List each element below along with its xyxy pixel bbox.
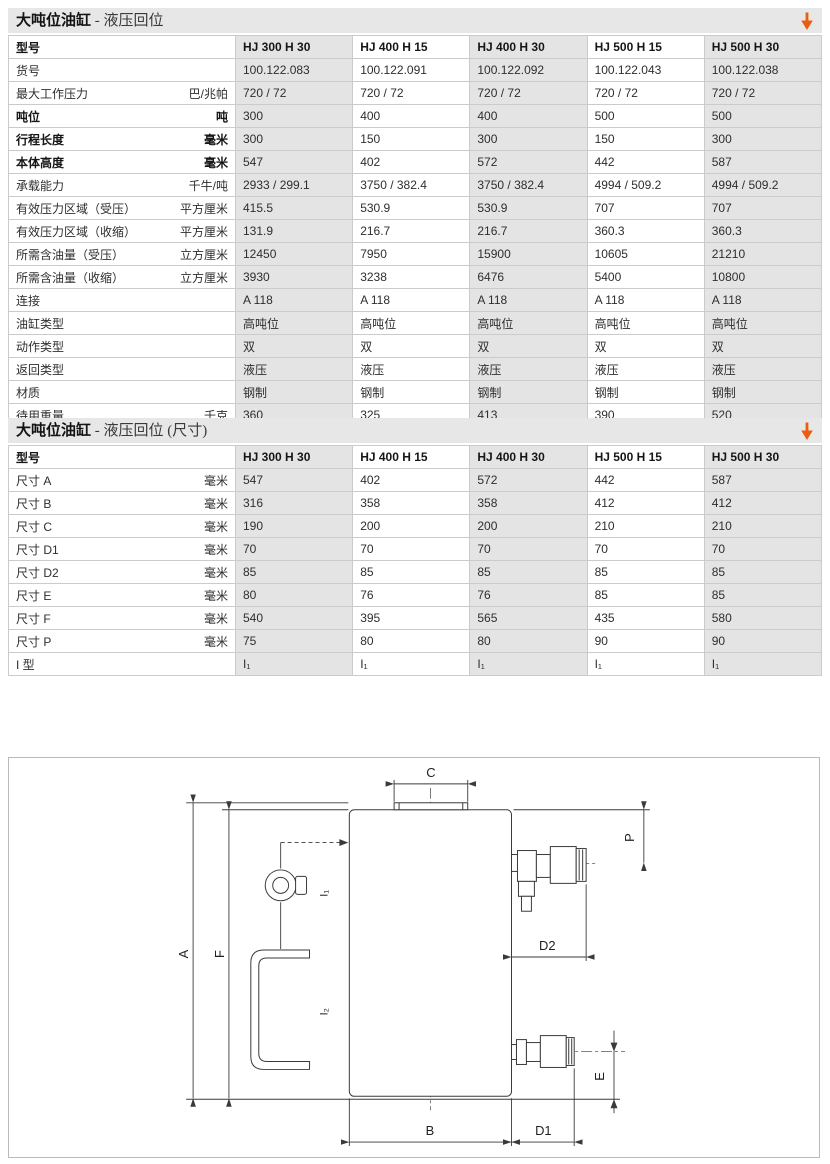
value-cell: 100.122.083: [236, 59, 353, 82]
row-label-wrap: 动作类型: [16, 338, 228, 355]
value-cell: A 118: [353, 289, 470, 312]
value-cell: 720 / 72: [704, 82, 821, 105]
value-cell: 76: [470, 584, 587, 607]
value-cell: 70: [470, 538, 587, 561]
value-cell: 300: [236, 105, 353, 128]
row-label-wrap: 有效压力区域（受压）平方厘米: [16, 200, 228, 217]
value-cell: 500: [587, 105, 704, 128]
value-cell: 300: [470, 128, 587, 151]
row-label-cell: 行程长度毫米: [9, 128, 236, 151]
value-cell: 400: [470, 105, 587, 128]
row-label-cell: 材质: [9, 381, 236, 404]
row-label: 油缸类型: [16, 315, 64, 332]
value-cell: 100.122.091: [353, 59, 470, 82]
table-row: 尺寸 P毫米7580809090: [9, 630, 822, 653]
table-row: 有效压力区域（收缩）平方厘米131.9216.7216.7360.3360.3: [9, 220, 822, 243]
value-cell: 高吨位: [470, 312, 587, 335]
value-cell: A 118: [470, 289, 587, 312]
table-row: 本体高度毫米547402572442587: [9, 151, 822, 174]
row-label-cell: I 型: [9, 653, 236, 676]
value-cell: 76: [353, 584, 470, 607]
row-label-wrap: 尺寸 D1毫米: [16, 541, 228, 558]
value-cell: 720 / 72: [587, 82, 704, 105]
row-label-wrap: 本体高度毫米: [16, 154, 228, 171]
value-cell: 540: [236, 607, 353, 630]
arrow-down-icon[interactable]: [799, 11, 815, 31]
value-cell: 300: [236, 128, 353, 151]
value-cell: 402: [353, 151, 470, 174]
value-cell: 10605: [587, 243, 704, 266]
section-title: 大吨位油缸: [16, 12, 91, 29]
table-row: 材质钢制钢制钢制钢制钢制: [9, 381, 822, 404]
spec-table-titlebar: 大吨位油缸 - 液压回位: [8, 8, 822, 33]
row-label: 尺寸 E: [16, 587, 51, 604]
value-cell: 4994 / 509.2: [587, 174, 704, 197]
row-unit: 毫米: [198, 610, 228, 627]
row-label-cell: 吨位吨: [9, 105, 236, 128]
value-cell: A 118: [587, 289, 704, 312]
row-label: 尺寸 D1: [16, 541, 59, 558]
table-row: 返回类型液压液压液压液压液压: [9, 358, 822, 381]
row-label-cell: 本体高度毫米: [9, 151, 236, 174]
value-cell: 70: [704, 538, 821, 561]
dimensions-table: 型号HJ 300 H 30HJ 400 H 15HJ 400 H 30HJ 50…: [8, 445, 822, 676]
section-subtitle: - 液压回位 (尺寸): [91, 423, 207, 439]
value-cell: 216.7: [470, 220, 587, 243]
row-unit: 毫米: [198, 495, 228, 512]
table-row: 所需含油量（收缩）立方厘米393032386476540010800: [9, 266, 822, 289]
value-cell: 75: [236, 630, 353, 653]
value-cell: 720 / 72: [236, 82, 353, 105]
row-unit: 吨: [210, 108, 228, 125]
table-row: 吨位吨300400400500500: [9, 105, 822, 128]
model-header-label: 型号: [9, 36, 236, 59]
row-unit: 毫米: [198, 472, 228, 489]
row-unit: 毫米: [198, 587, 228, 604]
bottom-coupler: [512, 1036, 575, 1068]
row-unit: 毫米: [198, 633, 228, 650]
row-label: 动作类型: [16, 338, 64, 355]
label-f: F: [212, 950, 227, 958]
table-row: 货号100.122.083100.122.091100.122.092100.1…: [9, 59, 822, 82]
row-unit: 毫米: [198, 564, 228, 581]
value-cell: 200: [353, 515, 470, 538]
value-cell: 4994 / 509.2: [704, 174, 821, 197]
value-cell: 液压: [353, 358, 470, 381]
table-row: 有效压力区域（受压）平方厘米415.5530.9530.9707707: [9, 197, 822, 220]
value-cell: 572: [470, 151, 587, 174]
lifting-eye: I₁: [265, 839, 348, 901]
value-cell: 587: [704, 469, 821, 492]
row-label-wrap: 承载能力千牛/吨: [16, 177, 228, 194]
section-title: 大吨位油缸: [16, 422, 91, 439]
dimensions-table-section: 大吨位油缸 - 液压回位 (尺寸) 型号HJ 300 H 30HJ 400 H …: [8, 418, 822, 676]
column-header: HJ 300 H 30: [236, 36, 353, 59]
value-cell: 10800: [704, 266, 821, 289]
row-label-cell: 承载能力千牛/吨: [9, 174, 236, 197]
column-header: HJ 500 H 15: [587, 446, 704, 469]
column-header: HJ 400 H 30: [470, 36, 587, 59]
dimension-c: C: [394, 765, 468, 802]
row-label-wrap: 材质: [16, 384, 228, 401]
table-row: 尺寸 A毫米547402572442587: [9, 469, 822, 492]
value-cell: 高吨位: [353, 312, 470, 335]
row-label: 尺寸 F: [16, 610, 51, 627]
column-header: HJ 400 H 15: [353, 36, 470, 59]
spec-table: 型号HJ 300 H 30HJ 400 H 15HJ 400 H 30HJ 50…: [8, 35, 822, 427]
value-cell: 442: [587, 151, 704, 174]
carry-handle: I₂: [251, 950, 331, 1069]
value-cell: 358: [353, 492, 470, 515]
row-label-wrap: 尺寸 A毫米: [16, 472, 228, 489]
value-cell: 131.9: [236, 220, 353, 243]
row-label-wrap: 尺寸 C毫米: [16, 518, 228, 535]
value-cell: 216.7: [353, 220, 470, 243]
column-header: HJ 300 H 30: [236, 446, 353, 469]
label-d1: D1: [535, 1123, 552, 1138]
value-cell: 412: [704, 492, 821, 515]
value-cell: 358: [470, 492, 587, 515]
table-row: 所需含油量（受压）立方厘米124507950159001060521210: [9, 243, 822, 266]
technical-drawing-frame: C A F: [8, 757, 820, 1158]
cylinder-technical-drawing: C A F: [9, 758, 819, 1157]
label-e: E: [592, 1072, 607, 1081]
row-label-wrap: 尺寸 D2毫米: [16, 564, 228, 581]
row-label-wrap: 油缸类型: [16, 315, 228, 332]
table-row: 连接A 118A 118A 118A 118A 118: [9, 289, 822, 312]
row-label-cell: 尺寸 E毫米: [9, 584, 236, 607]
value-cell: 720 / 72: [470, 82, 587, 105]
table-row: 承载能力千牛/吨2933 / 299.13750 / 382.43750 / 3…: [9, 174, 822, 197]
value-cell: 210: [587, 515, 704, 538]
value-cell: 70: [353, 538, 470, 561]
value-cell: 双: [236, 335, 353, 358]
value-cell: 85: [353, 561, 470, 584]
value-cell: 6476: [470, 266, 587, 289]
value-cell: 2933 / 299.1: [236, 174, 353, 197]
value-cell: I₁: [704, 653, 821, 676]
table-header-row: 型号HJ 300 H 30HJ 400 H 15HJ 400 H 30HJ 50…: [9, 36, 822, 59]
dimension-d1: D1: [512, 1068, 575, 1146]
value-cell: 液压: [470, 358, 587, 381]
value-cell: 500: [704, 105, 821, 128]
value-cell: 190: [236, 515, 353, 538]
value-cell: 双: [470, 335, 587, 358]
row-label: 尺寸 C: [16, 518, 52, 535]
label-c: C: [426, 765, 435, 780]
row-unit: 平方厘米: [174, 223, 228, 240]
row-label-cell: 所需含油量（收缩）立方厘米: [9, 266, 236, 289]
label-p: P: [622, 833, 637, 842]
value-cell: 210: [704, 515, 821, 538]
section-subtitle: - 液压回位: [91, 13, 164, 29]
value-cell: 572: [470, 469, 587, 492]
value-cell: 707: [704, 197, 821, 220]
value-cell: 液压: [587, 358, 704, 381]
value-cell: 7950: [353, 243, 470, 266]
value-cell: 液压: [704, 358, 821, 381]
value-cell: I₁: [236, 653, 353, 676]
table-row: 行程长度毫米300150300150300: [9, 128, 822, 151]
row-label-cell: 油缸类型: [9, 312, 236, 335]
row-label-cell: 尺寸 A毫米: [9, 469, 236, 492]
value-cell: 高吨位: [704, 312, 821, 335]
row-label-wrap: I 型: [16, 656, 228, 673]
value-cell: I₁: [587, 653, 704, 676]
value-cell: 85: [587, 584, 704, 607]
column-header: HJ 500 H 15: [587, 36, 704, 59]
row-label-cell: 最大工作压力巴/兆帕: [9, 82, 236, 105]
row-unit: 巴/兆帕: [183, 85, 228, 102]
row-label-wrap: 所需含油量（受压）立方厘米: [16, 246, 228, 263]
row-label-cell: 尺寸 P毫米: [9, 630, 236, 653]
dimensions-table-titlebar: 大吨位油缸 - 液压回位 (尺寸): [8, 418, 822, 443]
row-label-cell: 连接: [9, 289, 236, 312]
value-cell: 720 / 72: [353, 82, 470, 105]
row-unit: 立方厘米: [174, 246, 228, 263]
top-coupler: [512, 847, 587, 912]
table-row: 尺寸 D2毫米8585858585: [9, 561, 822, 584]
table-row: 尺寸 D1毫米7070707070: [9, 538, 822, 561]
value-cell: 415.5: [236, 197, 353, 220]
row-label-cell: 尺寸 F毫米: [9, 607, 236, 630]
column-header: HJ 500 H 30: [704, 446, 821, 469]
row-label: 承载能力: [16, 177, 64, 194]
row-label: 本体高度: [16, 154, 64, 171]
model-header-label: 型号: [9, 446, 236, 469]
label-i1: I₁: [318, 890, 330, 897]
row-label-cell: 尺寸 D2毫米: [9, 561, 236, 584]
row-label: 吨位: [16, 108, 40, 125]
row-label-wrap: 连接: [16, 292, 228, 309]
value-cell: 3750 / 382.4: [353, 174, 470, 197]
value-cell: 300: [704, 128, 821, 151]
value-cell: 85: [704, 584, 821, 607]
value-cell: A 118: [236, 289, 353, 312]
value-cell: A 118: [704, 289, 821, 312]
value-cell: 双: [353, 335, 470, 358]
value-cell: 80: [470, 630, 587, 653]
row-label-cell: 有效压力区域（收缩）平方厘米: [9, 220, 236, 243]
value-cell: 钢制: [470, 381, 587, 404]
value-cell: 580: [704, 607, 821, 630]
table-row: 尺寸 C毫米190200200210210: [9, 515, 822, 538]
value-cell: 360.3: [587, 220, 704, 243]
row-label: 尺寸 D2: [16, 564, 59, 581]
row-unit: 立方厘米: [174, 269, 228, 286]
row-label: 连接: [16, 292, 40, 309]
spec-table-section: 大吨位油缸 - 液压回位 型号HJ 300 H 30HJ 400 H 15HJ …: [8, 8, 822, 427]
row-label-cell: 有效压力区域（受压）平方厘米: [9, 197, 236, 220]
row-label: 所需含油量（收缩）: [16, 269, 124, 286]
value-cell: 402: [353, 469, 470, 492]
row-label-cell: 尺寸 B毫米: [9, 492, 236, 515]
label-d2: D2: [539, 938, 556, 953]
row-label-wrap: 尺寸 F毫米: [16, 610, 228, 627]
value-cell: 412: [587, 492, 704, 515]
table-header-row: 型号HJ 300 H 30HJ 400 H 15HJ 400 H 30HJ 50…: [9, 446, 822, 469]
label-b: B: [426, 1123, 435, 1138]
row-unit: 平方厘米: [174, 200, 228, 217]
row-label-wrap: 有效压力区域（收缩）平方厘米: [16, 223, 228, 240]
row-label-cell: 尺寸 C毫米: [9, 515, 236, 538]
value-cell: 液压: [236, 358, 353, 381]
value-cell: 5400: [587, 266, 704, 289]
table-row: 最大工作压力巴/兆帕720 / 72720 / 72720 / 72720 / …: [9, 82, 822, 105]
row-label-wrap: 最大工作压力巴/兆帕: [16, 85, 228, 102]
row-label-wrap: 行程长度毫米: [16, 131, 228, 148]
value-cell: 85: [587, 561, 704, 584]
label-i2: I₂: [318, 1008, 330, 1015]
value-cell: 双: [587, 335, 704, 358]
row-label-wrap: 吨位吨: [16, 108, 228, 125]
value-cell: 400: [353, 105, 470, 128]
value-cell: 100.122.092: [470, 59, 587, 82]
value-cell: 3238: [353, 266, 470, 289]
row-label: 尺寸 B: [16, 495, 51, 512]
row-label: I 型: [16, 656, 35, 673]
column-header: HJ 400 H 30: [470, 446, 587, 469]
value-cell: 钢制: [236, 381, 353, 404]
value-cell: 442: [587, 469, 704, 492]
value-cell: 530.9: [470, 197, 587, 220]
value-cell: 85: [236, 561, 353, 584]
value-cell: 80: [236, 584, 353, 607]
value-cell: 395: [353, 607, 470, 630]
value-cell: 100.122.043: [587, 59, 704, 82]
row-label: 材质: [16, 384, 40, 401]
saddle-cap: [394, 803, 468, 810]
value-cell: 21210: [704, 243, 821, 266]
value-cell: 3750 / 382.4: [470, 174, 587, 197]
row-label-wrap: 所需含油量（收缩）立方厘米: [16, 269, 228, 286]
value-cell: 435: [587, 607, 704, 630]
value-cell: 547: [236, 151, 353, 174]
row-unit: 千牛/吨: [183, 177, 228, 194]
value-cell: 钢制: [587, 381, 704, 404]
table-row: 油缸类型高吨位高吨位高吨位高吨位高吨位: [9, 312, 822, 335]
column-header: HJ 400 H 15: [353, 446, 470, 469]
row-label-cell: 尺寸 D1毫米: [9, 538, 236, 561]
row-label-wrap: 货号: [16, 62, 228, 79]
value-cell: 钢制: [353, 381, 470, 404]
value-cell: 316: [236, 492, 353, 515]
value-cell: 70: [587, 538, 704, 561]
value-cell: 85: [704, 561, 821, 584]
table-row: I 型I₁I₁I₁I₁I₁: [9, 653, 822, 676]
value-cell: 90: [587, 630, 704, 653]
value-cell: 12450: [236, 243, 353, 266]
table-row: 尺寸 F毫米540395565435580: [9, 607, 822, 630]
value-cell: 150: [353, 128, 470, 151]
row-label: 最大工作压力: [16, 85, 88, 102]
value-cell: 530.9: [353, 197, 470, 220]
value-cell: 100.122.038: [704, 59, 821, 82]
row-label-wrap: 尺寸 P毫米: [16, 633, 228, 650]
arrow-down-icon[interactable]: [799, 421, 815, 441]
value-cell: 200: [470, 515, 587, 538]
row-unit: 毫米: [198, 518, 228, 535]
value-cell: 钢制: [704, 381, 821, 404]
datasheet-page: 大吨位油缸 - 液压回位 型号HJ 300 H 30HJ 400 H 15HJ …: [0, 0, 830, 1164]
dimension-e: E: [592, 1031, 617, 1114]
value-cell: 高吨位: [587, 312, 704, 335]
dimension-b: B: [349, 1098, 511, 1146]
row-label: 返回类型: [16, 361, 64, 378]
cylinder-body: [349, 810, 511, 1097]
row-label-wrap: 尺寸 B毫米: [16, 495, 228, 512]
row-label: 货号: [16, 62, 40, 79]
row-label-cell: 货号: [9, 59, 236, 82]
row-label: 尺寸 P: [16, 633, 51, 650]
row-label-wrap: 尺寸 E毫米: [16, 587, 228, 604]
value-cell: 高吨位: [236, 312, 353, 335]
label-a: A: [176, 949, 191, 958]
row-label-cell: 动作类型: [9, 335, 236, 358]
value-cell: I₁: [470, 653, 587, 676]
value-cell: 80: [353, 630, 470, 653]
value-cell: 360.3: [704, 220, 821, 243]
value-cell: 双: [704, 335, 821, 358]
value-cell: 587: [704, 151, 821, 174]
value-cell: 70: [236, 538, 353, 561]
table-row: 动作类型双双双双双: [9, 335, 822, 358]
row-unit: 毫米: [198, 154, 228, 171]
row-label: 有效压力区域（受压）: [16, 200, 136, 217]
row-label: 有效压力区域（收缩）: [16, 223, 136, 240]
row-unit: 毫米: [198, 131, 228, 148]
row-label-cell: 所需含油量（受压）立方厘米: [9, 243, 236, 266]
value-cell: 547: [236, 469, 353, 492]
row-label-cell: 返回类型: [9, 358, 236, 381]
value-cell: 150: [587, 128, 704, 151]
row-label: 尺寸 A: [16, 472, 51, 489]
value-cell: 565: [470, 607, 587, 630]
table-row: 尺寸 E毫米8076768585: [9, 584, 822, 607]
row-label: 行程长度: [16, 131, 64, 148]
column-header: HJ 500 H 30: [704, 36, 821, 59]
value-cell: I₁: [353, 653, 470, 676]
value-cell: 90: [704, 630, 821, 653]
value-cell: 85: [470, 561, 587, 584]
row-label-wrap: 返回类型: [16, 361, 228, 378]
value-cell: 707: [587, 197, 704, 220]
row-label: 所需含油量（受压）: [16, 246, 124, 263]
table-row: 尺寸 B毫米316358358412412: [9, 492, 822, 515]
value-cell: 3930: [236, 266, 353, 289]
row-unit: 毫米: [198, 541, 228, 558]
value-cell: 15900: [470, 243, 587, 266]
